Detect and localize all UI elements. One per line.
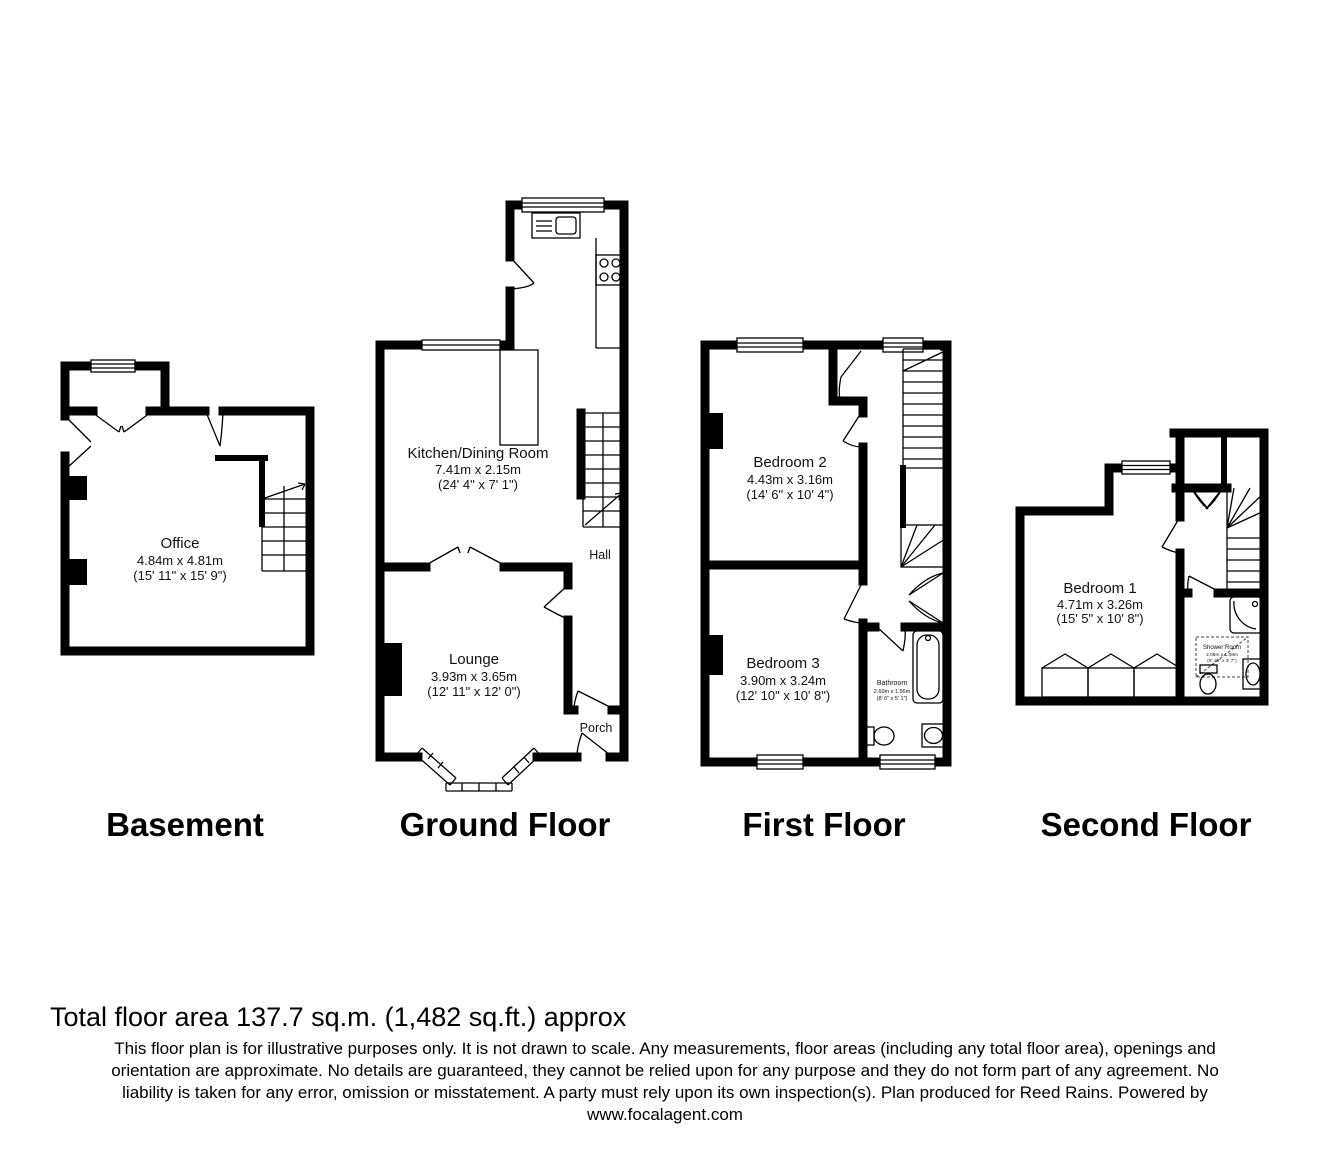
chimney-breast (65, 476, 87, 500)
second-stairs (1227, 488, 1264, 593)
toilet (1200, 665, 1217, 694)
basement-walls (65, 366, 310, 651)
room-dim-metric: 3.90m x 3.24m (740, 673, 826, 688)
room-dim-imperial: (12' 11" x 12' 0") (427, 684, 520, 699)
room-dim-imperial: (24' 4" x 7' 1") (438, 477, 518, 492)
room-name: Shower Room (1203, 645, 1241, 651)
chimney-breast (705, 413, 723, 449)
disclaimer-line: liability is taken for any error, omissi… (54, 1082, 1276, 1104)
wardrobes (1042, 654, 1180, 697)
bedroom3-room-label: Bedroom 3 3.90m x 3.24m (12' 10" x 10' 8… (736, 655, 830, 703)
basement-floor-plan: Office 4.84m x 4.81m (15' 11" x 15' 9") (55, 356, 315, 658)
room-dim-imperial: (14' 6" x 10' 4") (746, 487, 833, 502)
office-room-label: Office 4.84m x 4.81m (15' 11" x 15' 9") (133, 535, 226, 583)
room-dim-imperial: (15' 11" x 15' 9") (133, 568, 226, 583)
room-dim-metric: 2.60m x 1.56m (874, 689, 911, 695)
disclaimer-line: orientation are approximate. No details … (54, 1060, 1276, 1082)
shower-room-label: Shower Room 2.08m x 1.08m (6' 10" x 3' 7… (1203, 645, 1241, 664)
shower-enclosure (1230, 597, 1262, 633)
room-name: Kitchen/Dining Room (408, 445, 549, 462)
door-swing (1162, 489, 1222, 592)
room-name: Bathroom (877, 680, 908, 687)
room-dim-imperial: (12' 10" x 10' 8") (736, 688, 830, 703)
kitchen-peninsula (500, 350, 538, 445)
bedroom2-room-label: Bedroom 2 4.43m x 3.16m (14' 6" x 10' 4"… (746, 454, 833, 502)
porch-room-label: Porch (580, 721, 613, 735)
first-stairs (901, 349, 947, 567)
toilet (865, 727, 894, 745)
bathroom-room-label: Bathroom 2.60m x 1.56m (8' 6" x 5' 1") (874, 680, 911, 702)
room-name: Bedroom 1 (1063, 580, 1136, 597)
lounge-room-label: Lounge 3.93m x 3.65m (12' 11" x 12' 0") (427, 651, 520, 699)
winder-stairs (901, 525, 945, 567)
disclaimer-line: This floor plan is for illustrative purp… (54, 1038, 1276, 1060)
basement-caption: Basement (55, 806, 315, 844)
bathtub (913, 631, 943, 703)
chimney-breast (705, 635, 723, 675)
chimney-breast (380, 643, 402, 696)
bedroom1-room-label: Bedroom 1 4.71m x 3.26m (15' 5" x 10' 8"… (1056, 580, 1143, 626)
hall-room-label: Hall (589, 548, 611, 562)
room-name: Lounge (449, 651, 499, 668)
room-dim-metric: 4.43m x 3.16m (747, 472, 833, 487)
chimney-breast (65, 559, 87, 585)
bedroom1-window (1122, 461, 1170, 474)
disclaimer: This floor plan is for illustrative purp… (54, 1038, 1276, 1126)
room-name: Bedroom 3 (746, 655, 819, 672)
dining-window (422, 340, 500, 350)
room-name: Bedroom 2 (753, 454, 826, 471)
room-dim-metric: 3.93m x 3.65m (431, 669, 517, 684)
kitchen-window (522, 198, 604, 212)
room-dim-metric: 2.08m x 1.08m (1206, 652, 1238, 658)
room-dim-imperial: (8' 6" x 5' 1") (877, 696, 908, 702)
door-swing (67, 412, 223, 468)
basement-window (91, 360, 135, 372)
room-dim-imperial: (15' 5" x 10' 8") (1056, 611, 1143, 626)
website-url: www.focalagent.com (54, 1104, 1276, 1126)
ground-stairs (583, 413, 624, 527)
ground-floor-caption: Ground Floor (375, 806, 635, 844)
door-swing (839, 351, 943, 651)
kitchen-sink (532, 213, 580, 238)
room-dim-metric: 4.84m x 4.81m (137, 553, 223, 568)
first-floor-plan: Bedroom 2 4.43m x 3.16m (14' 6" x 10' 4"… (695, 335, 957, 772)
kitchen-room-label: Kitchen/Dining Room 7.41m x 2.15m (24' 4… (408, 445, 549, 492)
floor-plan-page: Office 4.84m x 4.81m (15' 11" x 15' 9") … (0, 0, 1328, 1151)
second-floor-plan: Bedroom 1 4.71m x 3.26m (15' 5" x 10' 8"… (1012, 423, 1270, 708)
ground-floor-plan: Kitchen/Dining Room 7.41m x 2.15m (24' 4… (372, 195, 634, 803)
room-dim-imperial: (6' 10" x 3' 7") (1207, 658, 1237, 664)
sink (922, 724, 945, 747)
room-dim-metric: 7.41m x 2.15m (435, 462, 521, 477)
room-dim-metric: 4.71m x 3.26m (1057, 597, 1143, 612)
second-floor-caption: Second Floor (1016, 806, 1276, 844)
basement-stairs (262, 483, 306, 571)
first-floor-caption: First Floor (694, 806, 954, 844)
bay-window (416, 748, 540, 791)
total-floor-area: Total floor area 137.7 sq.m. (1,482 sq.f… (50, 1002, 626, 1033)
room-name: Office (161, 535, 200, 552)
